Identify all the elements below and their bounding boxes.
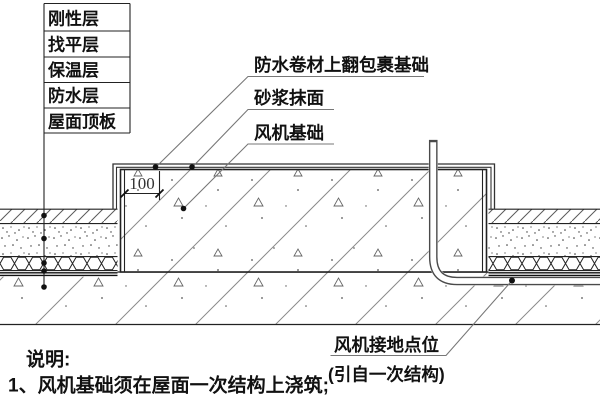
legend-label-screed-layer: 找平层 bbox=[48, 35, 99, 55]
callout-membrane-label: 防水卷材上翻包裹基础 bbox=[254, 55, 429, 75]
legend-label-roof-slab: 屋面顶板 bbox=[48, 112, 117, 132]
grounding-label-line2: (引自一次结构) bbox=[328, 365, 445, 385]
callout-membrane-dot bbox=[153, 164, 159, 170]
grounding-point-dot bbox=[509, 278, 515, 284]
screed-layer-left bbox=[0, 224, 118, 257]
screed-layer-right bbox=[489, 224, 600, 257]
grounding-label-line1: 风机接地点位 bbox=[334, 335, 439, 355]
callout-foundation-dot bbox=[181, 206, 187, 212]
callout-membrane: 防水卷材上翻包裹基础 bbox=[153, 55, 429, 170]
notes-item-1: 1、风机基础须在屋面一次结构上浇筑; bbox=[8, 374, 329, 397]
insulation-layer-right bbox=[489, 257, 600, 271]
dim-value: 100 bbox=[129, 174, 155, 193]
roof-layers-right bbox=[489, 208, 600, 276]
legend-label-rigid-layer: 刚性层 bbox=[48, 9, 99, 29]
rigid-layer-right bbox=[489, 209, 600, 223]
legend-label-waterproof-layer: 防水层 bbox=[48, 86, 99, 106]
callout-mortar-label: 砂浆抹面 bbox=[254, 88, 324, 108]
callout-foundation-label: 风机基础 bbox=[254, 123, 324, 143]
callout-mortar-dot bbox=[189, 164, 195, 170]
rigid-layer-left bbox=[0, 209, 118, 223]
legend-label-insulation-layer: 保温层 bbox=[47, 60, 99, 80]
roof-layers-left bbox=[0, 208, 118, 276]
insulation-layer-left bbox=[0, 257, 118, 271]
notes-title: 说明: bbox=[26, 348, 70, 371]
construction-detail-drawing: 刚性层 找平层 保温层 防水层 屋面顶板 100 防水卷材上翻包裹基础 砂浆抹面… bbox=[0, 0, 600, 400]
notes: 说明: 1、风机基础须在屋面一次结构上浇筑; bbox=[8, 348, 329, 397]
